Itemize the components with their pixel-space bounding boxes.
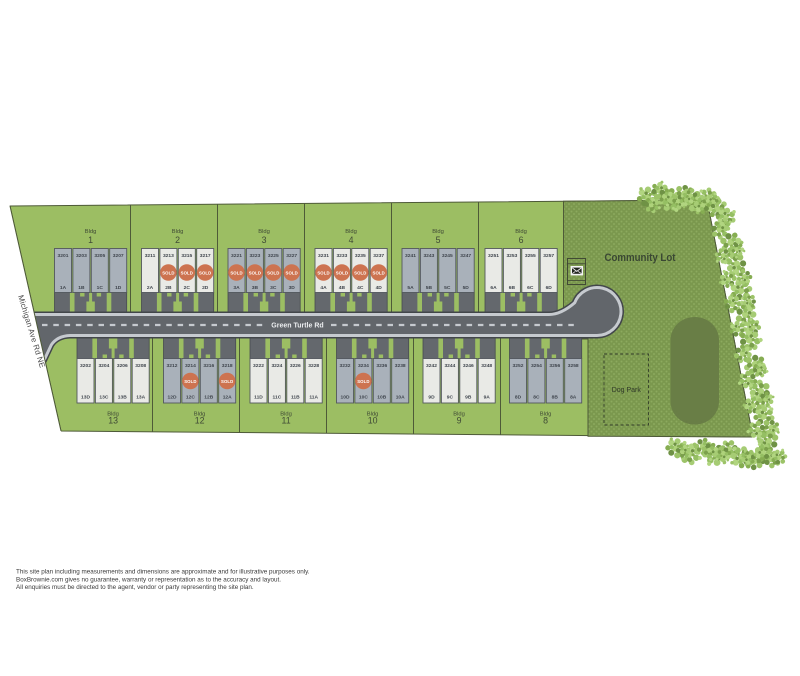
svg-text:8C: 8C (533, 395, 540, 401)
svg-text:3254: 3254 (531, 363, 542, 369)
svg-text:SOLD: SOLD (199, 270, 211, 275)
svg-text:3216: 3216 (203, 363, 214, 369)
svg-text:3215: 3215 (181, 253, 192, 259)
svg-text:3255: 3255 (525, 253, 536, 259)
svg-text:13B: 13B (118, 395, 127, 401)
svg-text:10D: 10D (341, 395, 350, 401)
svg-text:12C: 12C (186, 395, 195, 401)
svg-text:11: 11 (282, 415, 291, 425)
svg-text:6: 6 (519, 235, 524, 245)
svg-text:3226: 3226 (290, 363, 301, 369)
svg-text:3223: 3223 (249, 253, 260, 259)
svg-text:3257: 3257 (543, 253, 554, 259)
svg-text:13: 13 (108, 415, 118, 425)
svg-text:3231: 3231 (318, 253, 329, 259)
svg-text:SOLD: SOLD (336, 270, 348, 275)
svg-text:SOLD: SOLD (249, 270, 261, 275)
svg-text:3213: 3213 (163, 253, 174, 259)
svg-text:13C: 13C (99, 395, 108, 401)
svg-text:3233: 3233 (336, 253, 347, 259)
svg-text:SOLD: SOLD (184, 379, 196, 384)
svg-text:3201: 3201 (58, 253, 69, 259)
svg-text:3D: 3D (289, 285, 296, 291)
svg-text:4B: 4B (339, 285, 346, 291)
svg-text:2: 2 (175, 235, 180, 245)
svg-text:3227: 3227 (286, 253, 297, 259)
svg-text:3206: 3206 (117, 363, 128, 369)
svg-text:2B: 2B (165, 285, 172, 291)
svg-text:13D: 13D (81, 395, 90, 401)
svg-text:All enquiries must be directed: All enquiries must be directed to the ag… (16, 584, 254, 591)
svg-text:5D: 5D (463, 285, 470, 291)
svg-text:8A: 8A (570, 395, 577, 401)
svg-text:3208: 3208 (135, 363, 146, 369)
svg-text:2C: 2C (184, 285, 191, 291)
svg-text:SOLD: SOLD (354, 270, 366, 275)
svg-text:9A: 9A (484, 395, 491, 401)
svg-text:Community Lot: Community Lot (605, 252, 676, 264)
svg-text:4: 4 (349, 235, 354, 245)
svg-text:3225: 3225 (268, 253, 279, 259)
svg-text:3212: 3212 (167, 363, 178, 369)
svg-text:4A: 4A (320, 285, 327, 291)
svg-text:3228: 3228 (308, 363, 319, 369)
svg-text:3238: 3238 (395, 363, 406, 369)
svg-text:3: 3 (262, 235, 267, 245)
svg-text:1: 1 (88, 235, 93, 245)
svg-text:5B: 5B (426, 285, 433, 291)
svg-text:SOLD: SOLD (221, 379, 233, 384)
svg-text:SOLD: SOLD (317, 270, 329, 275)
svg-text:3246: 3246 (463, 363, 474, 369)
svg-text:11B: 11B (291, 395, 300, 401)
svg-text:Dog Park: Dog Park (612, 387, 642, 394)
svg-text:3242: 3242 (426, 363, 437, 369)
svg-text:3B: 3B (252, 285, 259, 291)
svg-text:3204: 3204 (98, 363, 109, 369)
svg-text:4C: 4C (357, 285, 364, 291)
svg-text:1D: 1D (115, 285, 122, 291)
svg-text:5: 5 (436, 235, 441, 245)
svg-text:3256: 3256 (549, 363, 560, 369)
svg-text:3224: 3224 (271, 363, 282, 369)
svg-text:3252: 3252 (513, 363, 524, 369)
svg-text:4D: 4D (376, 285, 383, 291)
svg-text:6D: 6D (546, 285, 553, 291)
svg-text:3245: 3245 (442, 253, 453, 259)
svg-text:3253: 3253 (506, 253, 517, 259)
svg-text:1B: 1B (78, 285, 85, 291)
svg-text:12: 12 (195, 415, 205, 425)
svg-text:3258: 3258 (568, 363, 579, 369)
svg-text:3222: 3222 (253, 363, 264, 369)
svg-text:3251: 3251 (488, 253, 499, 259)
svg-text:3237: 3237 (373, 253, 384, 259)
svg-text:8B: 8B (552, 395, 559, 401)
svg-text:12A: 12A (223, 395, 232, 401)
svg-text:BoxBrownie.com gives no guaran: BoxBrownie.com gives no guarantee, warra… (16, 576, 281, 583)
svg-text:10C: 10C (359, 395, 368, 401)
svg-text:3232: 3232 (340, 363, 351, 369)
svg-text:2D: 2D (202, 285, 209, 291)
svg-text:3217: 3217 (200, 253, 211, 259)
svg-text:2A: 2A (147, 285, 154, 291)
svg-text:6B: 6B (509, 285, 516, 291)
svg-text:3A: 3A (233, 285, 240, 291)
svg-text:SOLD: SOLD (230, 270, 242, 275)
svg-text:SOLD: SOLD (181, 270, 193, 275)
svg-text:3248: 3248 (481, 363, 492, 369)
svg-text:11C: 11C (273, 395, 282, 401)
svg-text:13A: 13A (136, 395, 145, 401)
svg-text:3244: 3244 (444, 363, 455, 369)
svg-text:6A: 6A (490, 285, 497, 291)
svg-text:3221: 3221 (231, 253, 242, 259)
svg-text:SOLD: SOLD (162, 270, 174, 275)
svg-text:3234: 3234 (358, 363, 369, 369)
svg-text:3241: 3241 (405, 253, 416, 259)
svg-text:9D: 9D (428, 395, 435, 401)
svg-text:11A: 11A (309, 395, 318, 401)
svg-text:5A: 5A (407, 285, 414, 291)
svg-text:3203: 3203 (76, 253, 87, 259)
svg-text:SOLD: SOLD (357, 379, 369, 384)
svg-text:Green Turtle Rd: Green Turtle Rd (271, 323, 323, 330)
svg-text:3202: 3202 (80, 363, 91, 369)
svg-text:SOLD: SOLD (373, 270, 385, 275)
svg-text:3205: 3205 (94, 253, 105, 259)
svg-text:3211: 3211 (145, 253, 156, 259)
svg-text:3207: 3207 (113, 253, 124, 259)
svg-text:8D: 8D (515, 395, 522, 401)
svg-text:9C: 9C (447, 395, 454, 401)
svg-text:10B: 10B (377, 395, 386, 401)
svg-text:3247: 3247 (460, 253, 471, 259)
svg-text:SOLD: SOLD (267, 270, 279, 275)
svg-text:SOLD: SOLD (286, 270, 298, 275)
svg-text:12B: 12B (204, 395, 213, 401)
svg-text:5C: 5C (444, 285, 451, 291)
svg-text:3C: 3C (270, 285, 277, 291)
svg-text:9: 9 (457, 415, 462, 425)
svg-text:12D: 12D (168, 395, 177, 401)
svg-text:3235: 3235 (355, 253, 366, 259)
svg-text:3243: 3243 (423, 253, 434, 259)
svg-text:11D: 11D (254, 395, 263, 401)
svg-text:6C: 6C (527, 285, 534, 291)
svg-text:1A: 1A (60, 285, 67, 291)
svg-text:3218: 3218 (222, 363, 233, 369)
svg-text:1C: 1C (97, 285, 104, 291)
svg-text:10: 10 (368, 415, 378, 425)
svg-text:This site plan including measu: This site plan including measurements an… (16, 569, 310, 576)
svg-text:9B: 9B (465, 395, 472, 401)
svg-text:10A: 10A (396, 395, 405, 401)
svg-text:3214: 3214 (185, 363, 196, 369)
svg-text:3236: 3236 (376, 363, 387, 369)
svg-text:8: 8 (543, 415, 548, 425)
